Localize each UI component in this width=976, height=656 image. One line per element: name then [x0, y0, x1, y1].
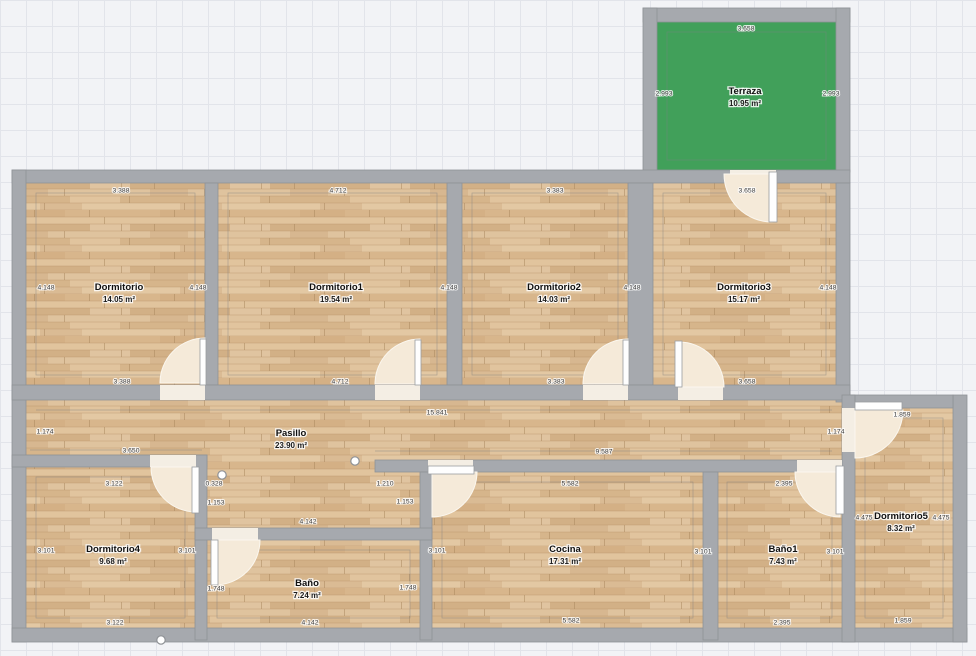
dimension-label: 3.383 — [546, 188, 563, 195]
room-area-bano1: 7.43 m² — [769, 557, 797, 566]
dimension-label: 3.388 — [113, 379, 130, 386]
dormitorio-door[interactable] — [200, 339, 206, 385]
dormitorio2-door[interactable] — [623, 340, 629, 385]
dimension-label: 1.210 — [376, 481, 393, 488]
door-opening — [160, 385, 205, 400]
dimension-label: 3.658 — [738, 379, 755, 386]
dimension-label: 3.101 — [178, 548, 195, 555]
dimension-label: 2.395 — [773, 620, 790, 627]
dimension-label: 3.122 — [106, 620, 123, 627]
dimension-label: 3.101 — [37, 548, 54, 555]
room-area-dormitorio1: 19.54 m² — [320, 295, 352, 304]
dimension-label: 3.650 — [122, 448, 139, 455]
dimension-label: 3.658 — [738, 188, 755, 195]
room-area-dormitorio: 14.05 m² — [103, 295, 135, 304]
room-name-dormitorio1[interactable]: Dormitorio1 — [309, 282, 364, 293]
room-name-pasillo[interactable]: Pasillo — [276, 428, 307, 439]
dimension-label: 3.122 — [105, 481, 122, 488]
dimension-label: 4.148 — [623, 285, 640, 292]
bano-door[interactable] — [211, 540, 218, 585]
wall[interactable] — [836, 183, 850, 402]
dimension-label: 4.475 — [855, 515, 872, 522]
dimension-label: 1.748 — [399, 585, 416, 592]
dimension-label: 4.712 — [331, 379, 348, 386]
room-name-dormitorio[interactable]: Dormitorio — [95, 282, 144, 293]
room-area-pasillo: 23.90 m² — [275, 441, 307, 450]
dimension-label: 3.101 — [826, 549, 843, 556]
dimension-label: 1.748 — [207, 586, 224, 593]
dimension-label: 1.174 — [36, 429, 53, 436]
dimension-label: 1.859 — [894, 618, 911, 625]
dimension-label: 15.841 — [427, 410, 448, 417]
floorplan-canvas: 3.6582.9932.9933.3884.7123.3833.6584.148… — [0, 0, 976, 656]
room-area-dormitorio3: 15.17 m² — [728, 295, 760, 304]
dimension-label: 1.153 — [396, 499, 413, 506]
terraza-door[interactable] — [769, 172, 777, 222]
dimension-label: 4.142 — [301, 620, 318, 627]
dimension-label: 3.101 — [694, 549, 711, 556]
room-area-cocina: 17.31 m² — [549, 557, 581, 566]
dimension-label: 4.142 — [299, 519, 316, 526]
room-area-bano: 7.24 m² — [293, 591, 321, 600]
room-name-dormitorio2[interactable]: Dormitorio2 — [527, 282, 581, 293]
dormitorio4-door[interactable] — [192, 467, 199, 513]
door-opening — [375, 385, 420, 400]
dimension-label: 4.148 — [189, 285, 206, 292]
dimension-label: 9.587 — [595, 449, 612, 456]
dimension-label: 2.993 — [822, 91, 839, 98]
dormitorio3-door[interactable] — [675, 341, 682, 387]
room-area-dormitorio5: 8.32 m² — [887, 524, 915, 533]
wall[interactable] — [643, 8, 850, 22]
dimension-label: 0.328 — [205, 481, 222, 488]
dimension-label: 2.395 — [775, 481, 792, 488]
cocina-door[interactable] — [428, 466, 474, 474]
dormitorio5-door[interactable] — [855, 402, 902, 410]
floorplan-drawing: 3.6582.9932.9933.3884.7123.3833.6584.148… — [0, 0, 976, 656]
wall-node-handle[interactable] — [218, 471, 226, 479]
door-opening — [797, 460, 842, 472]
room-area-dormitorio2: 14.03 m² — [538, 295, 570, 304]
dimension-label: 1.174 — [827, 429, 844, 436]
dimension-label: 3.658 — [737, 26, 754, 33]
dimension-label: 4.148 — [37, 285, 54, 292]
dimension-label: 3.388 — [112, 188, 129, 195]
dimension-label: 5.582 — [562, 618, 579, 625]
door-opening — [583, 385, 628, 400]
door-opening — [150, 455, 196, 467]
dimension-label: 4.712 — [329, 188, 346, 195]
door-opening — [212, 528, 258, 540]
wall-node-handle[interactable] — [351, 457, 359, 465]
dimension-label: 4.148 — [819, 285, 836, 292]
dimension-label: 3.383 — [547, 379, 564, 386]
room-name-bano1[interactable]: Baño1 — [768, 544, 798, 555]
room-name-dormitorio5[interactable]: Dormitorio5 — [874, 511, 929, 522]
room-name-terraza[interactable]: Terraza — [728, 86, 762, 97]
wall[interactable] — [953, 395, 967, 642]
wall[interactable] — [420, 472, 432, 640]
room-name-dormitorio4[interactable]: Dormitorio4 — [86, 544, 141, 555]
wall[interactable] — [205, 183, 218, 385]
dimension-label: 3.101 — [428, 548, 445, 555]
dormitorio1-door[interactable] — [415, 340, 421, 385]
dimension-label: 5.582 — [561, 481, 578, 488]
wall[interactable] — [12, 628, 967, 642]
room-area-dormitorio4: 9.68 m² — [99, 557, 127, 566]
dimension-label: 1.153 — [207, 500, 224, 507]
dimension-label: 4.148 — [440, 285, 457, 292]
wall-node-handle[interactable] — [157, 636, 165, 644]
room-name-dormitorio3[interactable]: Dormitorio3 — [717, 282, 771, 293]
room-area-terraza: 10.95 m² — [729, 99, 761, 108]
wall[interactable] — [12, 170, 26, 642]
room-name-cocina[interactable]: Cocina — [549, 544, 581, 555]
bano1-door[interactable] — [836, 466, 844, 514]
dimension-label: 2.993 — [655, 91, 672, 98]
wall[interactable] — [703, 472, 718, 640]
room-name-bano[interactable]: Baño — [295, 578, 319, 589]
dimension-label: 1.859 — [893, 412, 910, 419]
dimension-label: 4.475 — [932, 515, 949, 522]
